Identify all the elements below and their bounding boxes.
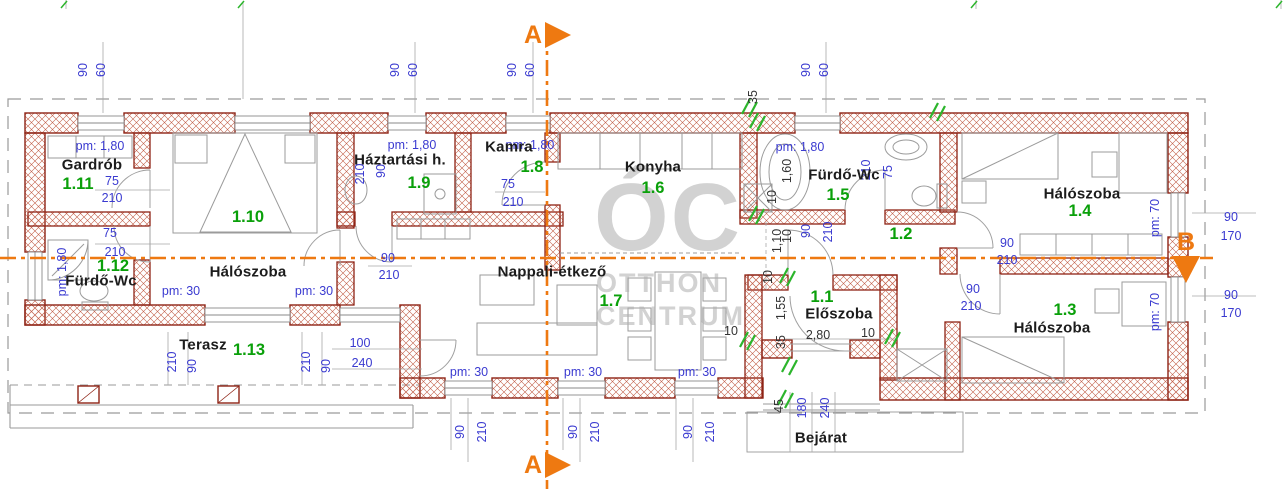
dim-label-17: pm: 1,80 [388,139,437,152]
dim-label-29: 75 [882,165,895,179]
dim-label-50: pm: 70 [1149,293,1162,331]
dim-label-23: 75 [501,178,515,191]
room-label-halo-1-4: Hálószoba [1044,187,1121,202]
room-number-furdo-1-12: 1.12 [97,258,129,275]
room-label-eloszoba: Előszoba [805,307,872,322]
room-label-terasz: Terasz [179,338,227,353]
dim-label-58: 90 [567,425,580,439]
dim-label-47: 170 [1221,230,1242,243]
dim-label-45: pm: 70 [1149,199,1162,237]
floor-plan: ÓC OTTHON CENTRUM A A B 9060906090609060… [0,0,1283,500]
dim-label-34: 10 [762,270,775,284]
room-label-gardrob: Gardrób [62,158,123,173]
dim-label-39: 10 [861,327,875,340]
dining-table [628,272,726,370]
dim-label-20: 90 [381,252,395,265]
dim-label-37: 10 [724,325,738,338]
chair-1-4 [1092,152,1117,177]
bed-1-3 [962,337,1064,383]
sofa-nappali [477,285,597,355]
dim-label-49: 210 [961,300,982,313]
dim-label-38: 2,80 [806,329,830,342]
dim-label-21: 210 [379,269,400,282]
dim-label-52: 170 [1221,307,1242,320]
dim-label-53: pm: 30 [450,366,488,379]
closet-x-1-3 [897,349,947,381]
entrance-label: Bejárat [795,431,847,446]
dim-label-36: 35 [775,335,788,349]
room-number-terasz: 1.13 [233,342,265,359]
room-label-furdo-1-12: Fürdő-Wc [65,274,137,289]
dim-label-51: 90 [1224,289,1238,302]
dim-label-6: 90 [800,63,813,77]
dim-label-25: pm: 1,80 [776,141,825,154]
dim-label-24: 210 [503,196,524,209]
room-label-furdo-1-5: Fürdő-Wc [808,168,880,183]
section-a-arrow-icon [545,22,571,48]
dim-label-63: 90 [186,359,199,373]
room-number-kamra: 1.8 [521,159,544,176]
dim-label-7: 60 [818,63,831,77]
room-number-halo-1-4: 1.4 [1069,203,1092,220]
dim-label-40: 45 [773,399,786,413]
dim-label-9: pm: 1,80 [76,140,125,153]
terrace-columns [78,386,239,403]
section-a-arrow-icon [545,452,571,478]
section-b-arrow-icon [1172,256,1200,283]
dim-label-66: 100 [350,337,371,350]
room-label-halo-1-3: Hálószoba [1014,321,1091,336]
basin-1-5 [885,134,927,160]
dim-label-16: pm: 30 [295,285,333,298]
dim-label-5: 60 [524,63,537,77]
dim-label-67: 240 [352,357,373,370]
room-label-kamra: Kamra [485,140,533,155]
dim-label-35: 1,55 [775,296,788,320]
dim-label-0: 90 [77,63,90,77]
room-number-furdo-1-5: 1.5 [827,187,850,204]
room-label-haztartasi: Háztartási h. [354,153,446,168]
dim-label-31: 1,10 [771,229,784,253]
nightstand-1-3 [1095,289,1119,313]
dim-label-43: 90 [1000,237,1014,250]
section-marker-b-right: B [1172,230,1200,283]
dim-label-59: 210 [589,422,602,443]
section-marker-a-bottom: A [524,452,571,478]
dim-label-41: 180 [796,398,809,419]
room-number-haztartasi: 1.9 [408,175,431,192]
dim-label-1: 60 [95,63,108,77]
dim-label-8: 35 [747,90,760,104]
dim-label-65: 90 [320,359,333,373]
dim-label-2: 90 [389,63,402,77]
dim-label-48: 90 [966,283,980,296]
room-number-halo-1-10: 1.10 [232,209,264,226]
floor-plan-drawing [0,0,1283,500]
dim-label-60: 90 [682,425,695,439]
section-a-letter: A [524,453,542,478]
room-number-gardrob: 1.11 [62,176,93,193]
room-label-konyha: Konyha [625,160,681,175]
room-number-konyha: 1.6 [642,180,665,197]
closet-1-4 [1020,234,1162,255]
dim-label-62: 210 [166,352,179,373]
dim-label-3: 60 [407,63,420,77]
dim-label-55: pm: 30 [678,366,716,379]
room-label-halo-1-10: Hálószoba [210,265,287,280]
dim-label-15: pm: 30 [162,285,200,298]
dim-label-4: 90 [506,63,519,77]
dim-label-42: 240 [819,398,832,419]
dim-label-26: 1,60 [781,159,794,183]
dim-label-57: 210 [476,422,489,443]
room-number-eloszoba: 1.1 [811,289,834,306]
dim-label-56: 90 [454,425,467,439]
dim-label-46: 90 [1224,211,1238,224]
dim-label-33: 210 [822,222,835,243]
room-label-nappali: Nappali-étkező [498,265,607,280]
dim-label-13: 75 [103,227,117,240]
dim-label-32: 90 [800,224,813,238]
room-number-nappali: 1.7 [600,293,623,310]
section-b-letter: B [1177,230,1195,255]
dim-label-11: 210 [102,192,123,205]
dim-label-30: 10 [766,190,779,204]
dim-label-64: 210 [300,352,313,373]
desk-1-4 [1119,133,1167,193]
room-number-kozlekedo-1-2: 1.2 [890,226,913,243]
dim-label-44: 210 [997,254,1018,267]
section-a-letter: A [524,23,542,48]
section-marker-a-top: A [524,22,571,48]
dim-label-61: 210 [704,422,717,443]
dim-label-54: pm: 30 [564,366,602,379]
room-number-halo-1-3: 1.3 [1054,302,1077,319]
dim-label-10: 75 [105,175,119,188]
